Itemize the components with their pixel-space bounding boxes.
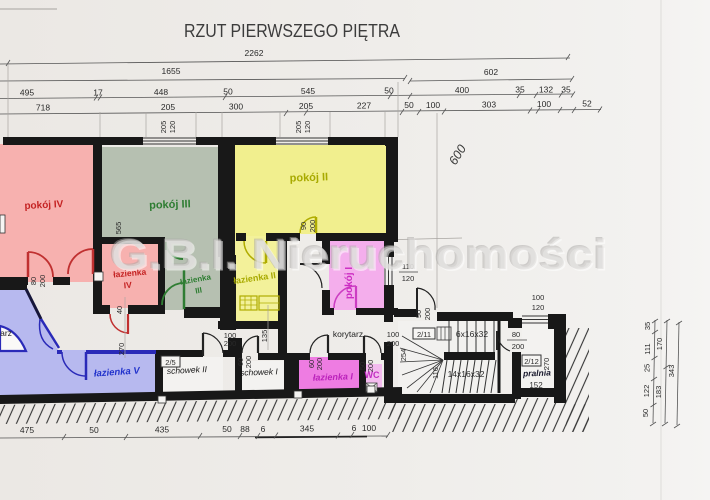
svg-text:52: 52	[582, 99, 592, 109]
svg-text:50: 50	[89, 425, 99, 435]
svg-text:50: 50	[641, 409, 650, 417]
svg-text:495: 495	[20, 88, 34, 98]
svg-text:200: 200	[387, 339, 400, 348]
svg-text:135: 135	[260, 330, 269, 343]
svg-text:6: 6	[261, 424, 266, 434]
svg-text:205: 205	[161, 102, 175, 112]
svg-text:183: 183	[654, 386, 663, 399]
svg-text:205: 205	[299, 101, 313, 111]
svg-text:35: 35	[515, 85, 525, 95]
svg-text:1655: 1655	[162, 66, 181, 76]
svg-text:400: 400	[455, 85, 469, 95]
svg-text:303: 303	[482, 100, 496, 110]
svg-text:pokój IV: pokój IV	[24, 199, 64, 212]
svg-text:schowek I: schowek I	[240, 366, 279, 377]
svg-text:152: 152	[529, 381, 543, 390]
svg-text:80: 80	[29, 277, 38, 285]
svg-text:475: 475	[20, 425, 34, 435]
svg-text:IV: IV	[123, 280, 132, 291]
svg-text:2/11: 2/11	[417, 330, 431, 339]
svg-text:RZUT PIERWSZEGO PIĘTRA: RZUT PIERWSZEGO PIĘTRA	[184, 21, 400, 41]
svg-text:80: 80	[512, 330, 520, 339]
svg-text:35: 35	[561, 84, 571, 94]
svg-text:50: 50	[404, 100, 414, 110]
svg-text:25: 25	[643, 364, 652, 372]
svg-text:205: 205	[294, 121, 303, 134]
svg-text:6: 6	[352, 423, 357, 433]
svg-text:718: 718	[36, 103, 50, 113]
svg-text:50: 50	[384, 86, 394, 96]
svg-text:40: 40	[115, 306, 124, 314]
svg-text:100: 100	[532, 293, 545, 302]
svg-text:14x16x32: 14x16x32	[448, 369, 485, 379]
svg-text:pralnia: pralnia	[522, 368, 551, 379]
svg-text:602: 602	[484, 67, 498, 77]
svg-text:schowek II: schowek II	[167, 364, 208, 376]
svg-text:17: 17	[93, 87, 103, 97]
svg-text:200: 200	[512, 342, 525, 351]
svg-text:200: 200	[315, 358, 324, 371]
svg-text:2/12: 2/12	[524, 357, 539, 366]
svg-text:254: 254	[399, 349, 408, 362]
svg-text:122: 122	[642, 385, 651, 398]
svg-text:343: 343	[667, 365, 676, 378]
svg-text:448: 448	[154, 87, 168, 97]
svg-text:G.B.I. Nieruchomości: G.B.I. Nieruchomości	[110, 231, 607, 279]
svg-text:90: 90	[414, 310, 423, 318]
svg-text:200: 200	[423, 308, 432, 321]
svg-text:2262: 2262	[245, 48, 264, 58]
svg-text:100: 100	[387, 330, 400, 339]
svg-text:270: 270	[117, 343, 126, 356]
svg-text:100: 100	[537, 99, 551, 109]
svg-text:227: 227	[357, 101, 371, 111]
svg-text:120: 120	[168, 121, 177, 134]
svg-text:132: 132	[539, 85, 553, 95]
svg-text:pokój III: pokój III	[149, 198, 191, 211]
svg-text:100: 100	[362, 423, 376, 433]
svg-text:35: 35	[643, 322, 652, 330]
svg-text:50: 50	[222, 424, 232, 434]
svg-text:88: 88	[240, 424, 250, 434]
svg-text:łazienka I: łazienka I	[313, 371, 354, 382]
svg-text:200: 200	[224, 339, 237, 348]
svg-text:120: 120	[532, 303, 545, 312]
svg-text:200: 200	[38, 275, 47, 288]
svg-text:545: 545	[301, 86, 315, 96]
svg-text:100: 100	[426, 100, 440, 110]
svg-text:pokój II: pokój II	[289, 171, 328, 184]
svg-text:170: 170	[655, 338, 664, 351]
svg-text:arz: arz	[0, 328, 12, 338]
svg-text:116: 116	[431, 367, 440, 379]
svg-text:205: 205	[159, 121, 168, 134]
svg-text:435: 435	[155, 425, 169, 435]
svg-text:WC: WC	[365, 370, 380, 380]
svg-text:345: 345	[300, 424, 314, 434]
svg-text:6x16x32: 6x16x32	[456, 329, 488, 339]
svg-text:300: 300	[229, 102, 243, 112]
svg-text:111: 111	[643, 343, 652, 354]
svg-text:50: 50	[223, 87, 233, 97]
svg-text:korytarz: korytarz	[333, 329, 363, 339]
svg-text:120: 120	[303, 121, 312, 134]
